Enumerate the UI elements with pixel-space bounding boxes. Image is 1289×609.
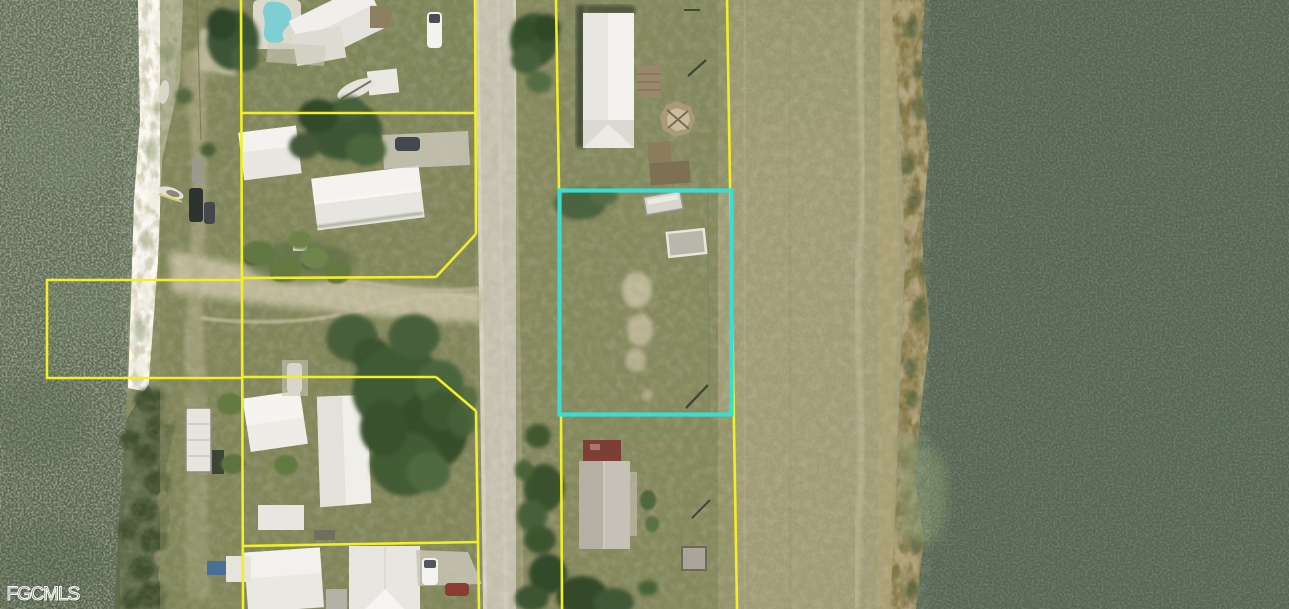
svg-text:FGCMLS: FGCMLS xyxy=(7,584,80,605)
